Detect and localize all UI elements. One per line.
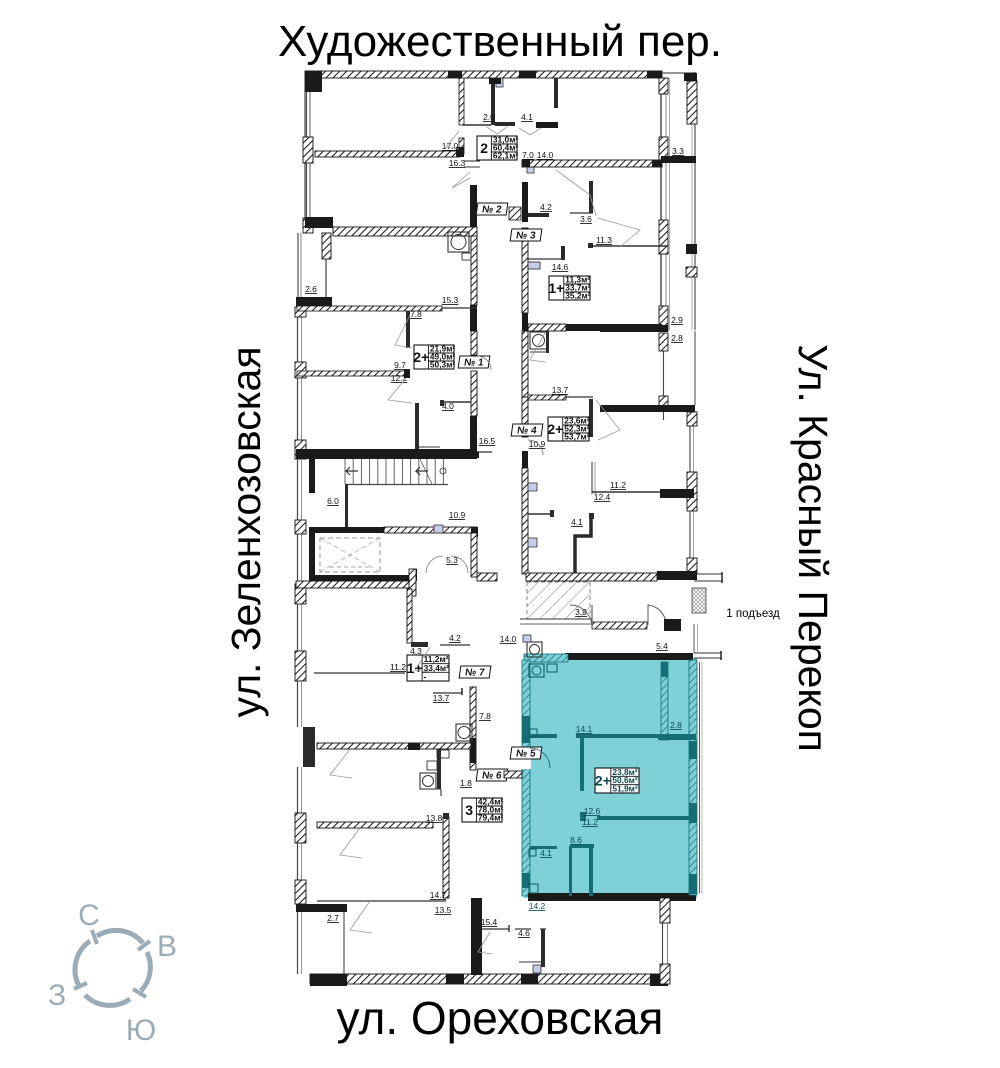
svg-text:12.6: 12.6 — [584, 806, 601, 816]
svg-text:2.7: 2.7 — [327, 913, 339, 923]
svg-text:13.8: 13.8 — [426, 813, 443, 823]
svg-text:13.7: 13.7 — [433, 693, 450, 703]
svg-text:1 подъезд: 1 подъезд — [726, 608, 780, 620]
svg-text:№ 4: № 4 — [516, 426, 537, 437]
svg-text:ул. Зеленхозовская: ул. Зеленхозовская — [223, 346, 269, 717]
svg-text:5.4: 5.4 — [656, 641, 668, 651]
svg-text:Ул. Красный Перекоп: Ул. Красный Перекоп — [790, 344, 836, 752]
svg-text:13.7: 13.7 — [552, 385, 569, 395]
svg-text:4.1: 4.1 — [521, 112, 533, 122]
svg-text:14.0: 14.0 — [500, 634, 517, 644]
svg-text:7.8: 7.8 — [410, 309, 422, 319]
svg-text:14.0: 14.0 — [537, 150, 554, 160]
svg-text:51,9м²: 51,9м² — [612, 784, 637, 794]
svg-text:№ 1: № 1 — [463, 358, 484, 369]
svg-text:7.0: 7.0 — [522, 150, 534, 160]
svg-text:№ 7: № 7 — [464, 668, 485, 679]
svg-text:62,1м²: 62,1м² — [493, 151, 518, 161]
svg-text:З: З — [48, 979, 66, 1012]
svg-text:№ 2: № 2 — [481, 205, 502, 216]
svg-text:16.5: 16.5 — [479, 436, 496, 446]
svg-text:9.7: 9.7 — [394, 360, 406, 370]
svg-text:2.8: 2.8 — [671, 333, 683, 343]
svg-text:№ 6: № 6 — [481, 771, 502, 782]
svg-text:1.8: 1.8 — [460, 778, 472, 788]
svg-text:11.2: 11.2 — [610, 480, 626, 490]
svg-text:12.2: 12.2 — [391, 373, 408, 383]
svg-text:4.1: 4.1 — [571, 517, 583, 527]
svg-text:35,2м²: 35,2м² — [565, 291, 590, 301]
svg-text:3.9: 3.9 — [575, 607, 587, 617]
svg-text:14.7: 14.7 — [430, 890, 447, 900]
svg-text:4.2: 4.2 — [540, 202, 552, 212]
svg-text:4.6: 4.6 — [518, 928, 530, 938]
svg-text:12.4: 12.4 — [594, 492, 611, 502]
svg-text:1+: 1+ — [548, 280, 564, 296]
svg-text:Ю: Ю — [126, 1014, 156, 1047]
svg-text:7.8: 7.8 — [479, 711, 491, 721]
svg-text:В: В — [157, 930, 177, 963]
svg-text:14.6: 14.6 — [552, 262, 569, 272]
svg-text:6.0: 6.0 — [327, 496, 339, 506]
svg-text:8.6: 8.6 — [570, 835, 582, 845]
svg-text:79,4м²: 79,4м² — [478, 813, 503, 823]
svg-text:2+: 2+ — [547, 421, 563, 437]
svg-text:3: 3 — [465, 802, 473, 818]
svg-text:-: - — [424, 672, 427, 682]
svg-text:2.9: 2.9 — [671, 315, 683, 325]
svg-text:С: С — [78, 899, 100, 932]
svg-text:ул. Ореховская: ул. Ореховская — [337, 992, 664, 1044]
svg-text:3.3: 3.3 — [672, 146, 684, 156]
svg-text:11.2: 11.2 — [582, 817, 598, 827]
svg-text:16.3: 16.3 — [449, 158, 466, 168]
svg-text:14.2: 14.2 — [529, 901, 546, 911]
svg-text:14.1: 14.1 — [576, 724, 593, 734]
svg-text:2.0: 2.0 — [483, 112, 495, 122]
svg-text:10.9: 10.9 — [449, 510, 466, 520]
svg-text:№ 5: № 5 — [515, 749, 536, 760]
svg-text:53,7м²: 53,7м² — [564, 432, 589, 442]
svg-text:11.2: 11.2 — [390, 662, 406, 672]
svg-text:13.5: 13.5 — [435, 905, 452, 915]
svg-text:4.1: 4.1 — [540, 848, 552, 858]
svg-text:15.3: 15.3 — [442, 295, 459, 305]
svg-text:2.8: 2.8 — [670, 720, 682, 730]
svg-text:2+: 2+ — [413, 349, 429, 365]
svg-text:4.2: 4.2 — [449, 633, 461, 643]
svg-text:№ 3: № 3 — [515, 231, 536, 242]
svg-text:3.6: 3.6 — [580, 214, 592, 224]
svg-text:11.3: 11.3 — [596, 235, 612, 245]
svg-text:2.6: 2.6 — [305, 284, 317, 294]
svg-text:2: 2 — [480, 140, 488, 156]
svg-text:15.4: 15.4 — [481, 917, 498, 927]
svg-text:4.0: 4.0 — [442, 401, 454, 411]
svg-text:2+: 2+ — [595, 773, 611, 789]
svg-text:50,3м²: 50,3м² — [430, 360, 455, 370]
svg-text:Художественный пер.: Художественный пер. — [278, 17, 722, 66]
